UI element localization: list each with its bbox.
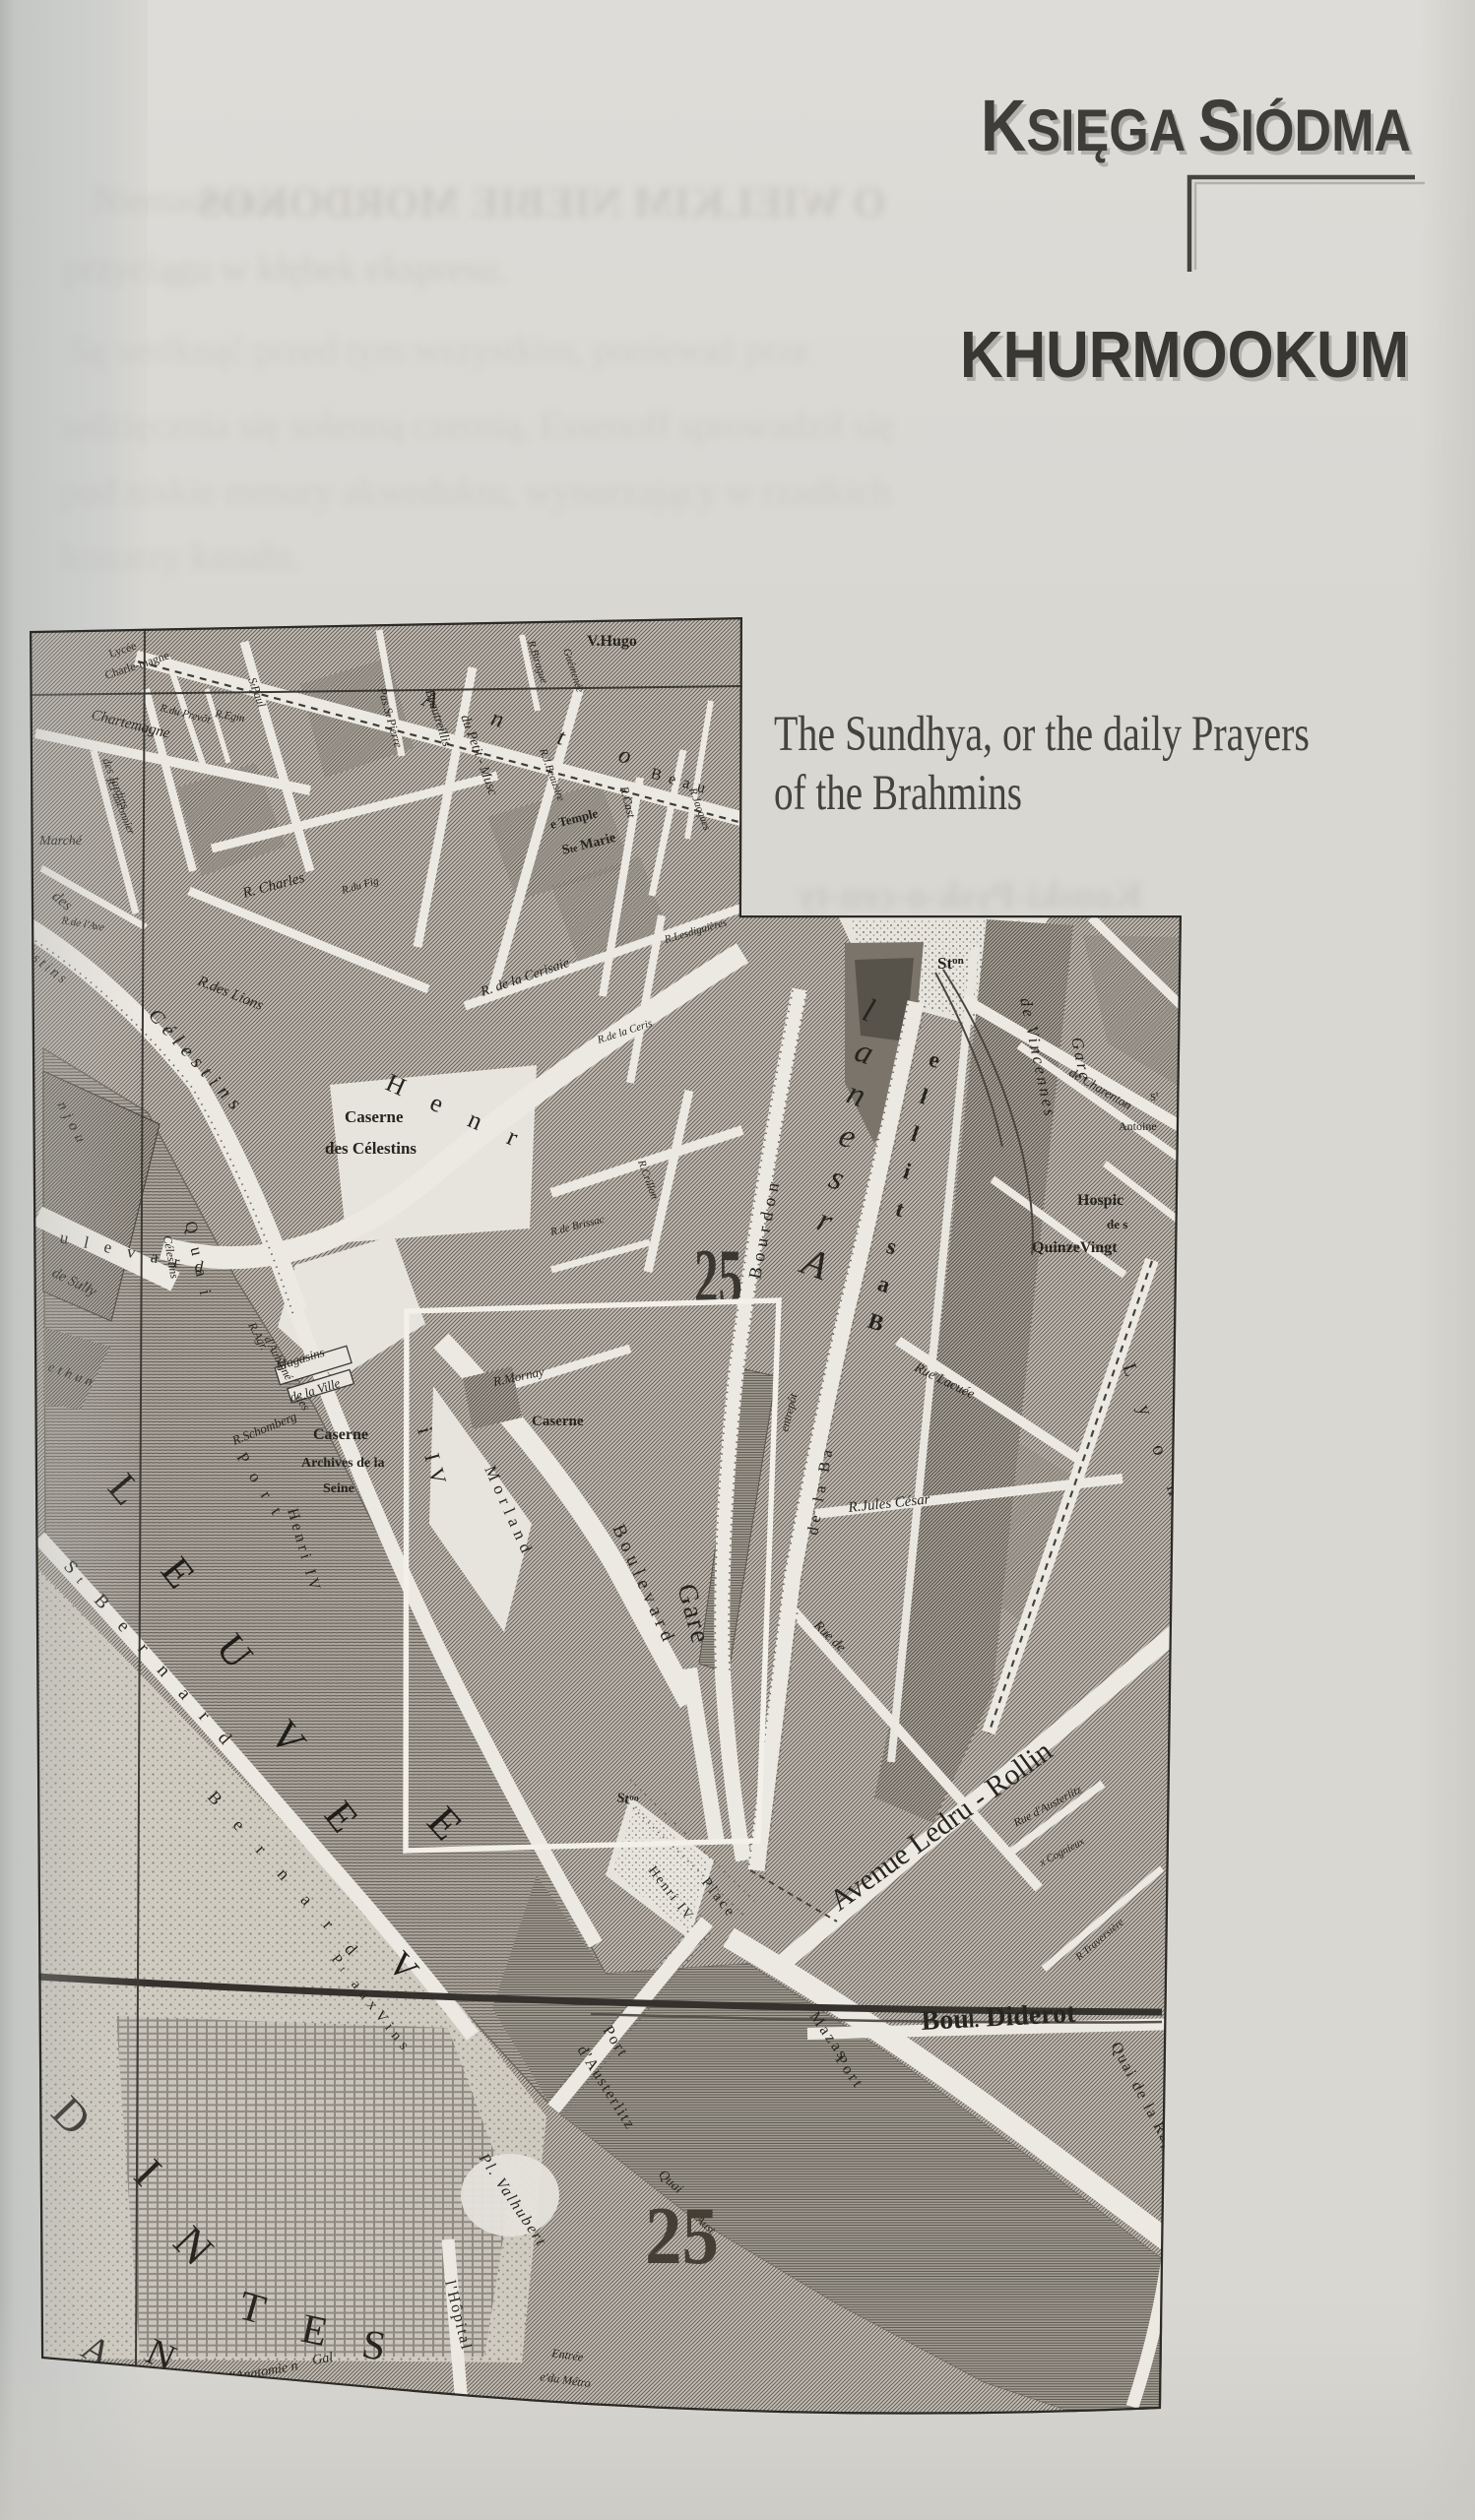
svg-text:KSIĘGA SIÓDMA: KSIĘGA SIÓDMA bbox=[981, 85, 1411, 166]
svg-text:Caserne: Caserne bbox=[313, 1426, 368, 1443]
svg-text:25: 25 bbox=[645, 2190, 719, 2282]
svg-text:Są umiknąć przed tym wszystkim: Są umiknąć przed tym wszystkim, ponieważ… bbox=[69, 330, 809, 371]
svg-text:des Célestins: des Célestins bbox=[325, 1139, 417, 1158]
svg-text:O WIELKIM NIEBIE MORDOKOS: O WIELKIM NIEBIE MORDOKOS bbox=[197, 178, 886, 226]
svg-text:przyciągu w kłębek ekspresu.: przyciągu w kłębek ekspresu. bbox=[64, 248, 507, 289]
svg-text:Caserne: Caserne bbox=[532, 1414, 584, 1429]
svg-text:Seine: Seine bbox=[323, 1481, 354, 1496]
svg-text:Konski-Pysk-o-cen-ty: Konski-Pysk-o-cen-ty bbox=[798, 875, 1142, 916]
svg-text:KHURMOOKUM: KHURMOOKUM bbox=[960, 318, 1409, 392]
svg-text:Antoine: Antoine bbox=[1119, 1119, 1157, 1133]
svg-text:Archives de la: Archives de la bbox=[301, 1456, 385, 1471]
svg-text:konarzy kanału.: konarzy kanału. bbox=[61, 536, 300, 578]
svg-text:25: 25 bbox=[694, 1234, 742, 1321]
svg-text:Hospic: Hospic bbox=[1077, 1192, 1123, 1209]
svg-text:QuinzeVingt: QuinzeVingt bbox=[1032, 1239, 1118, 1256]
svg-text:of the Brahmins: of the Brahmins bbox=[774, 766, 1022, 821]
svg-text:pod niskie mmury akweduktu, wy: pod niskie mmury akweduktu, wynurzający … bbox=[61, 472, 891, 513]
svg-text:de s: de s bbox=[1107, 1217, 1127, 1231]
svg-text:V.Hugo: V.Hugo bbox=[587, 633, 637, 650]
svg-text:Caserne: Caserne bbox=[345, 1107, 404, 1126]
svg-text:The Sundhya, or the daily Pray: The Sundhya, or the daily Prayers bbox=[774, 707, 1310, 762]
svg-text:wdzięcznia się solenną czernią: wdzięcznia się solenną czernią, Essenoff… bbox=[61, 406, 895, 447]
